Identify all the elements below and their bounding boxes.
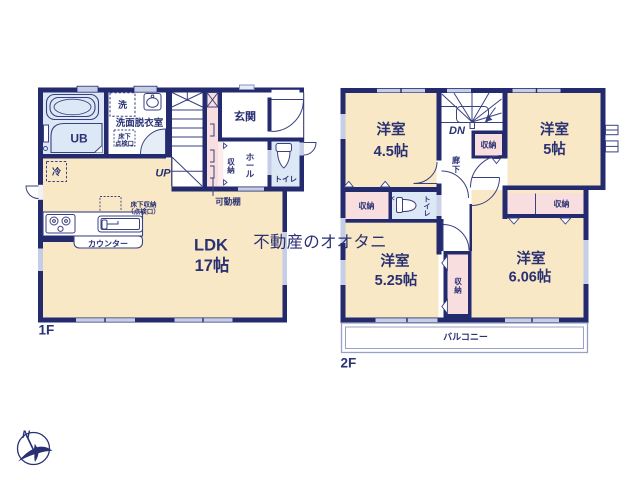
svg-text:UP: UP (155, 168, 171, 180)
svg-text:4.5帖: 4.5帖 (374, 142, 409, 160)
svg-text:ル: ル (246, 169, 255, 179)
svg-text:DN: DN (449, 125, 466, 137)
svg-text:6.06帖: 6.06帖 (509, 268, 552, 286)
svg-text:カウンター: カウンター (88, 239, 128, 249)
svg-text:1F: 1F (39, 323, 55, 338)
svg-text:バルコニー: バルコニー (443, 332, 488, 342)
svg-text:収納: 収納 (359, 201, 375, 211)
svg-text:納: 納 (454, 285, 462, 295)
svg-text:洋室: 洋室 (540, 121, 569, 139)
svg-text:納: 納 (227, 165, 235, 175)
svg-text:冷: 冷 (52, 166, 61, 177)
svg-text:床下収納: 床下収納 (131, 200, 158, 209)
svg-text:17帖: 17帖 (195, 255, 230, 275)
svg-text:可動棚: 可動棚 (215, 197, 241, 207)
svg-text:洗: 洗 (118, 99, 127, 110)
svg-text:（点検口）: （点検口） (127, 207, 160, 216)
svg-text:2F: 2F (341, 356, 357, 371)
svg-text:点検口: 点検口 (115, 139, 134, 148)
svg-text:レ: レ (424, 210, 431, 218)
svg-text:収: 収 (454, 276, 462, 286)
svg-text:不動産のオオタニ: 不動産のオオタニ (253, 233, 387, 252)
svg-text:床下: 床下 (118, 132, 131, 141)
svg-text:5.25帖: 5.25帖 (375, 271, 418, 289)
svg-text:N: N (22, 429, 31, 441)
svg-text:洋室: 洋室 (381, 252, 410, 270)
svg-text:トイレ: トイレ (275, 175, 298, 184)
svg-text:収納: 収納 (554, 199, 570, 209)
svg-text:洋室: 洋室 (517, 250, 546, 268)
svg-text:ト: ト (424, 196, 431, 204)
svg-text:下: 下 (452, 165, 460, 174)
svg-text:LDK: LDK (194, 237, 228, 255)
svg-text:収納: 収納 (481, 140, 497, 150)
svg-text:廊: 廊 (452, 155, 460, 165)
svg-text:玄関: 玄関 (234, 109, 256, 123)
svg-text:洗面脱衣室: 洗面脱衣室 (116, 117, 164, 129)
svg-text:イ: イ (424, 203, 431, 211)
svg-text:洋室: 洋室 (377, 121, 406, 139)
svg-text:UB: UB (70, 132, 88, 146)
svg-text:5帖: 5帖 (543, 140, 566, 158)
